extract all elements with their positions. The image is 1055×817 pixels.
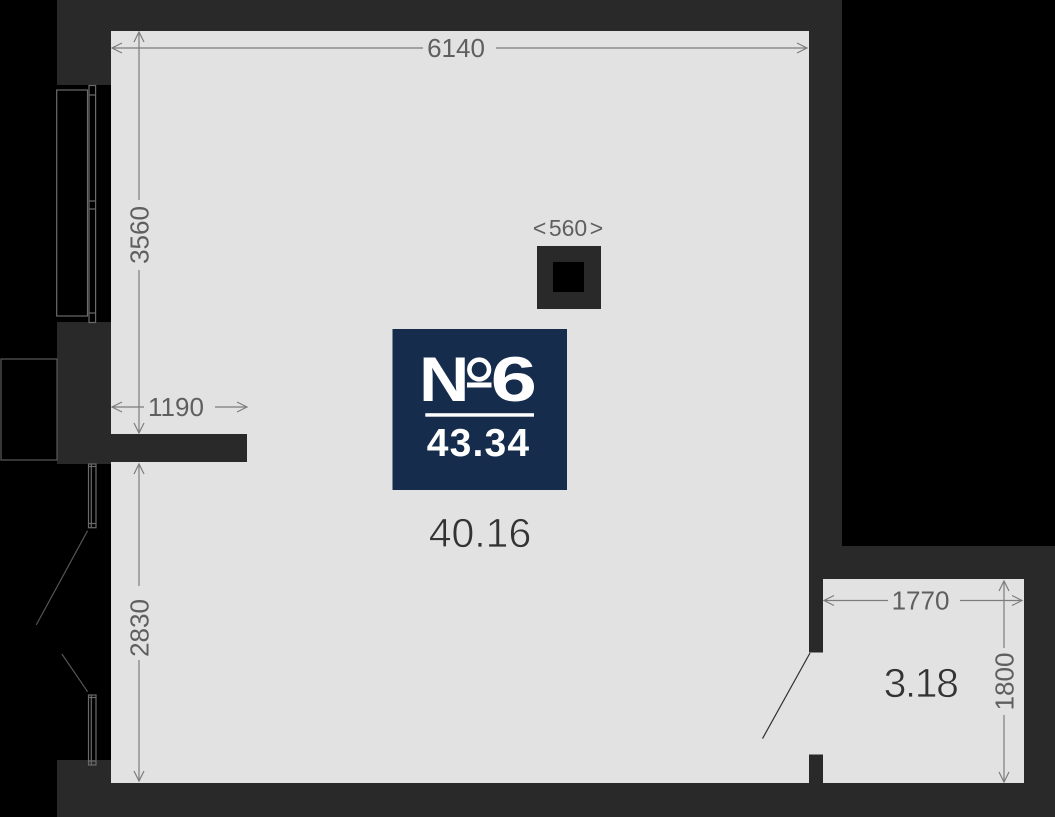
svg-text:N: N: [419, 345, 469, 415]
svg-text:<560>: <560>: [533, 215, 603, 241]
svg-text:1770: 1770: [892, 586, 950, 616]
svg-text:40.16: 40.16: [429, 510, 532, 556]
svg-text:1800: 1800: [990, 653, 1020, 711]
svg-text:2830: 2830: [125, 599, 155, 657]
svg-text:3.18: 3.18: [884, 660, 958, 706]
svg-text:3560: 3560: [125, 206, 155, 264]
svg-text:1190: 1190: [148, 392, 204, 422]
svg-text:43.34: 43.34: [427, 422, 531, 465]
svg-text:6140: 6140: [427, 33, 485, 63]
svg-text:6: 6: [491, 345, 537, 415]
